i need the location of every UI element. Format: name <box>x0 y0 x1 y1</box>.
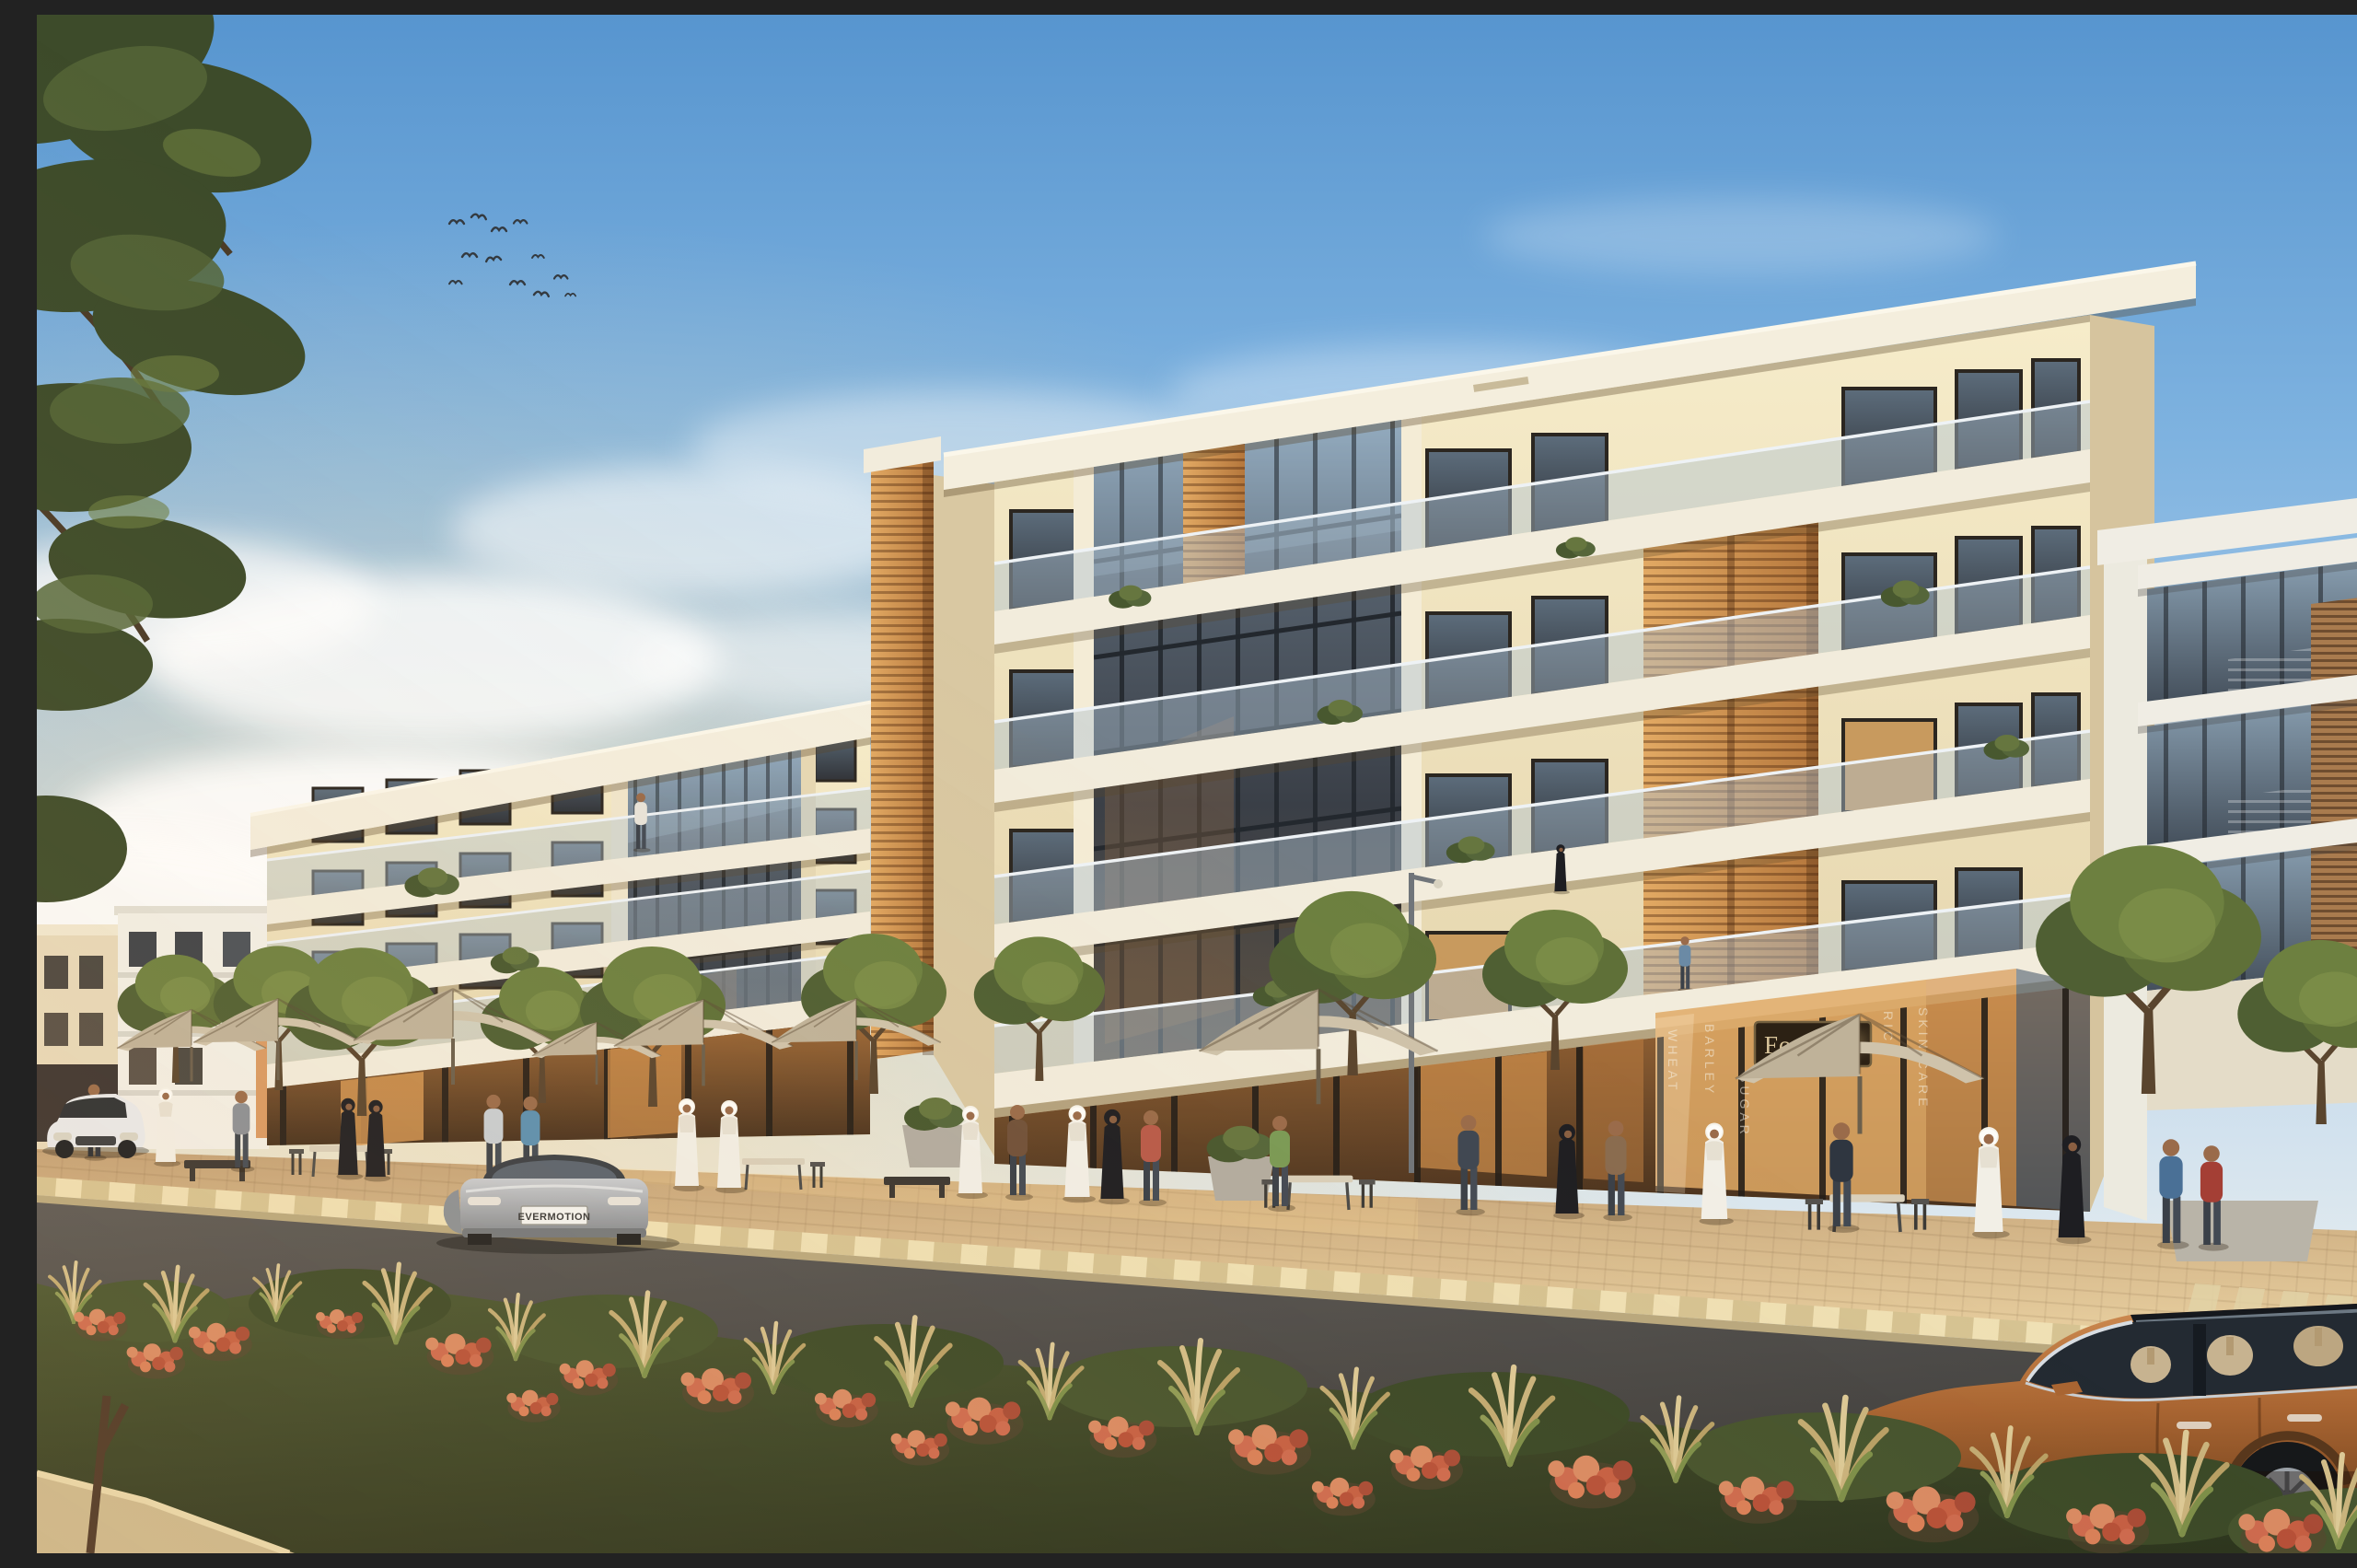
color-grade-overlay <box>37 15 2357 1553</box>
scene-canvas: WHEAT BARLEY SUGAR RICE SKIN CARE Food & <box>37 15 2357 1553</box>
archviz-scene: WHEAT BARLEY SUGAR RICE SKIN CARE Food & <box>37 15 2357 1553</box>
